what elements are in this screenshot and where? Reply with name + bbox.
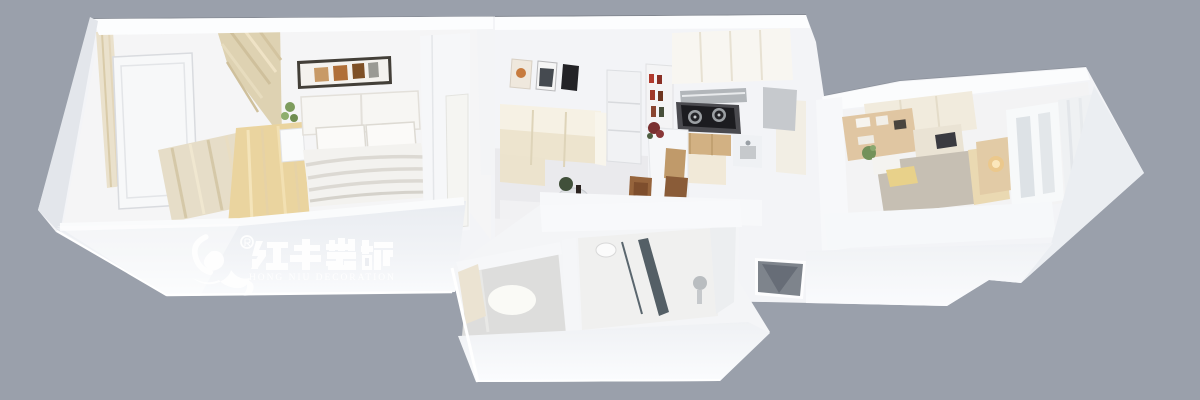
svg-text:HONG NIU DECORATION: HONG NIU DECORATION: [249, 273, 396, 283]
